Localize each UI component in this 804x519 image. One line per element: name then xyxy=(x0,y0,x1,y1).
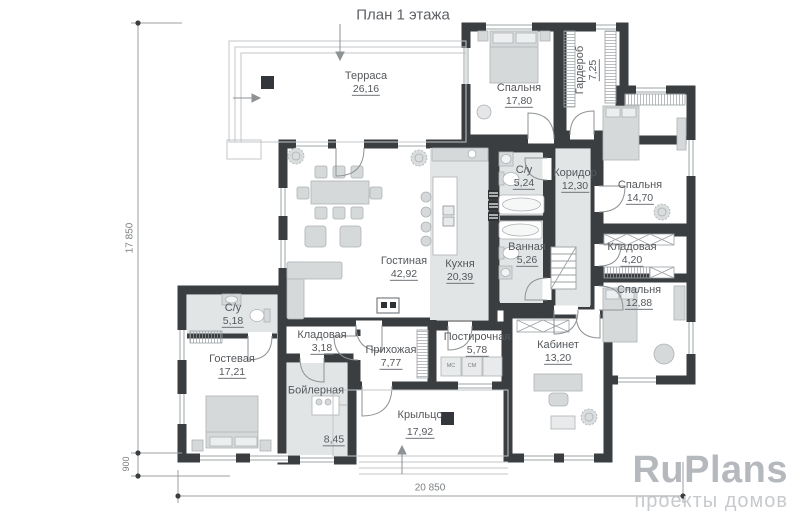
kitchen-counter xyxy=(432,148,488,161)
room-label-boiler-area: 8,45 xyxy=(323,433,345,446)
page-title: План 1 этажа xyxy=(356,7,450,24)
dim-porch-offset: 900 xyxy=(121,454,131,473)
dim-width-total: 20 850 xyxy=(413,483,448,494)
watermark-tagline: проекты домов xyxy=(632,491,788,511)
fireplace xyxy=(377,298,399,313)
room-label-corridor: Коридор 12,30 xyxy=(553,167,596,193)
room-label-laundry: Постирочная 5,78 xyxy=(444,331,511,357)
room-label-wc-5-18: С/у 5,18 xyxy=(222,302,244,328)
room-label-bedroom-12-88: Спальня 12,88 xyxy=(617,284,661,310)
room-label-bedroom-14-70: Спальня 14,70 xyxy=(618,179,662,205)
vent-shafts xyxy=(488,190,499,221)
stair-symbol xyxy=(551,247,576,289)
room-label-boiler-name: Бойлерная xyxy=(288,385,344,398)
room-label-office: Кабинет 13,20 xyxy=(537,339,579,365)
room-label-kitchen: Кухня 20,39 xyxy=(445,258,474,284)
room-label-porch: Крыльцо 17,92 xyxy=(398,409,443,439)
dim-height-total: 17 850 xyxy=(125,221,136,256)
room-label-living: Гостиная 42,92 xyxy=(381,255,427,281)
watermark-brand: RuPlans xyxy=(632,451,788,489)
washer-label-left: МС xyxy=(447,363,456,369)
room-label-terrace: Терраса 26,16 xyxy=(345,70,387,96)
room-label-guest: Гостевая 17,21 xyxy=(209,353,255,379)
room-label-storage-3-18: Кладовая 3,18 xyxy=(297,329,346,355)
room-label-storage-4-20: Кладовая 4,20 xyxy=(607,241,656,267)
room-label-wardrobe: Гардероб 7,25 xyxy=(574,46,600,94)
room-label-wc-5-24: С/у 5,24 xyxy=(513,164,535,190)
floor-plan-canvas: План 1 этажа Терраса 26,16 Спальня 17,80… xyxy=(0,0,804,519)
room-label-bedroom-17-80: Спальня 17,80 xyxy=(497,82,541,108)
room-label-bath: Ванная 5,26 xyxy=(508,241,546,267)
watermark: RuPlans проекты домов xyxy=(632,451,788,511)
washer-label-right: СМ xyxy=(468,363,477,369)
room-label-hallway: Прихожая 7,77 xyxy=(366,344,417,370)
